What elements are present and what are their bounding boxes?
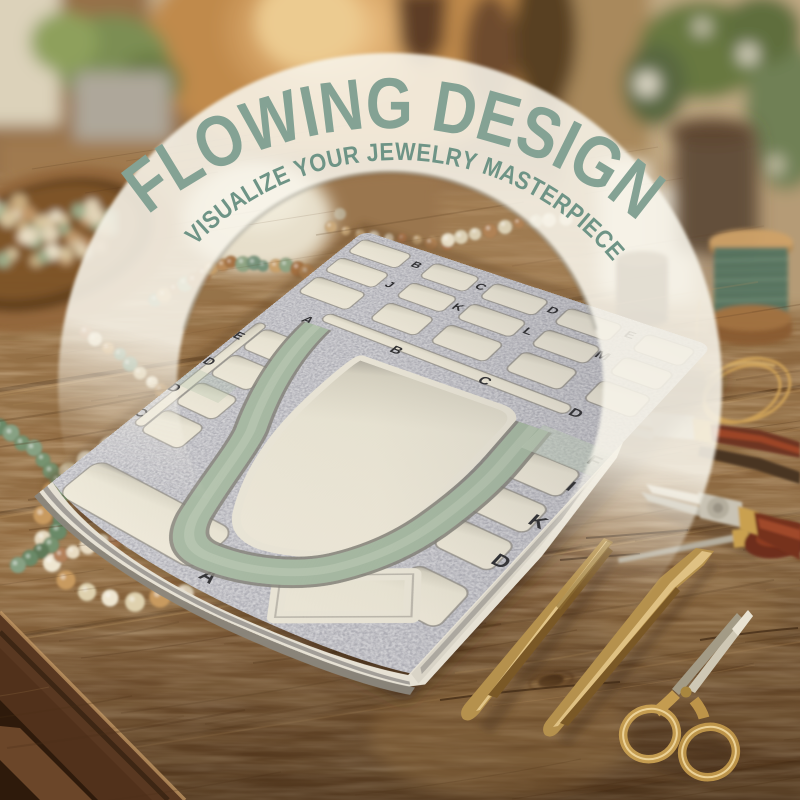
svg-text:G: G <box>366 64 413 144</box>
svg-text:W: W <box>395 137 417 165</box>
svg-text:E: E <box>379 138 394 166</box>
svg-text:J: J <box>365 138 379 167</box>
